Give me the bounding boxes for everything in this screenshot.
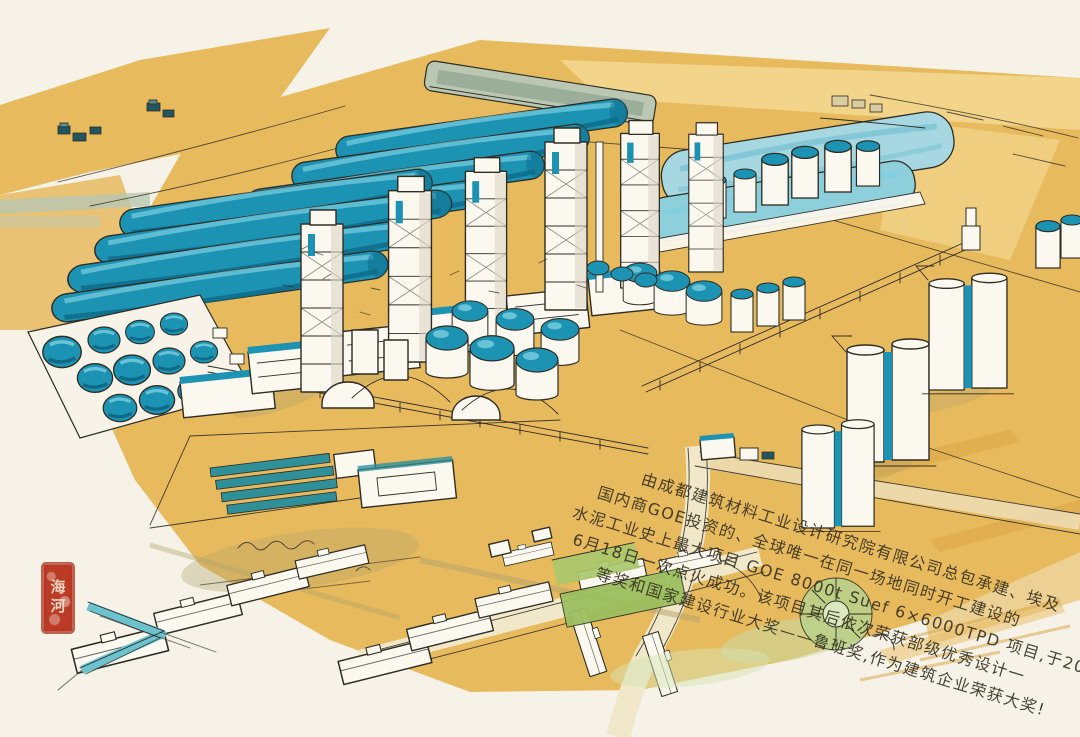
watercolor-painting: 由成都建筑材料工业设计研究院有限公司总包承建、埃及 国内商GOE投资的、全球唯一…: [0, 0, 1080, 737]
artist-seal-text: 海河: [48, 579, 69, 617]
artist-seal: 海河: [41, 562, 75, 634]
